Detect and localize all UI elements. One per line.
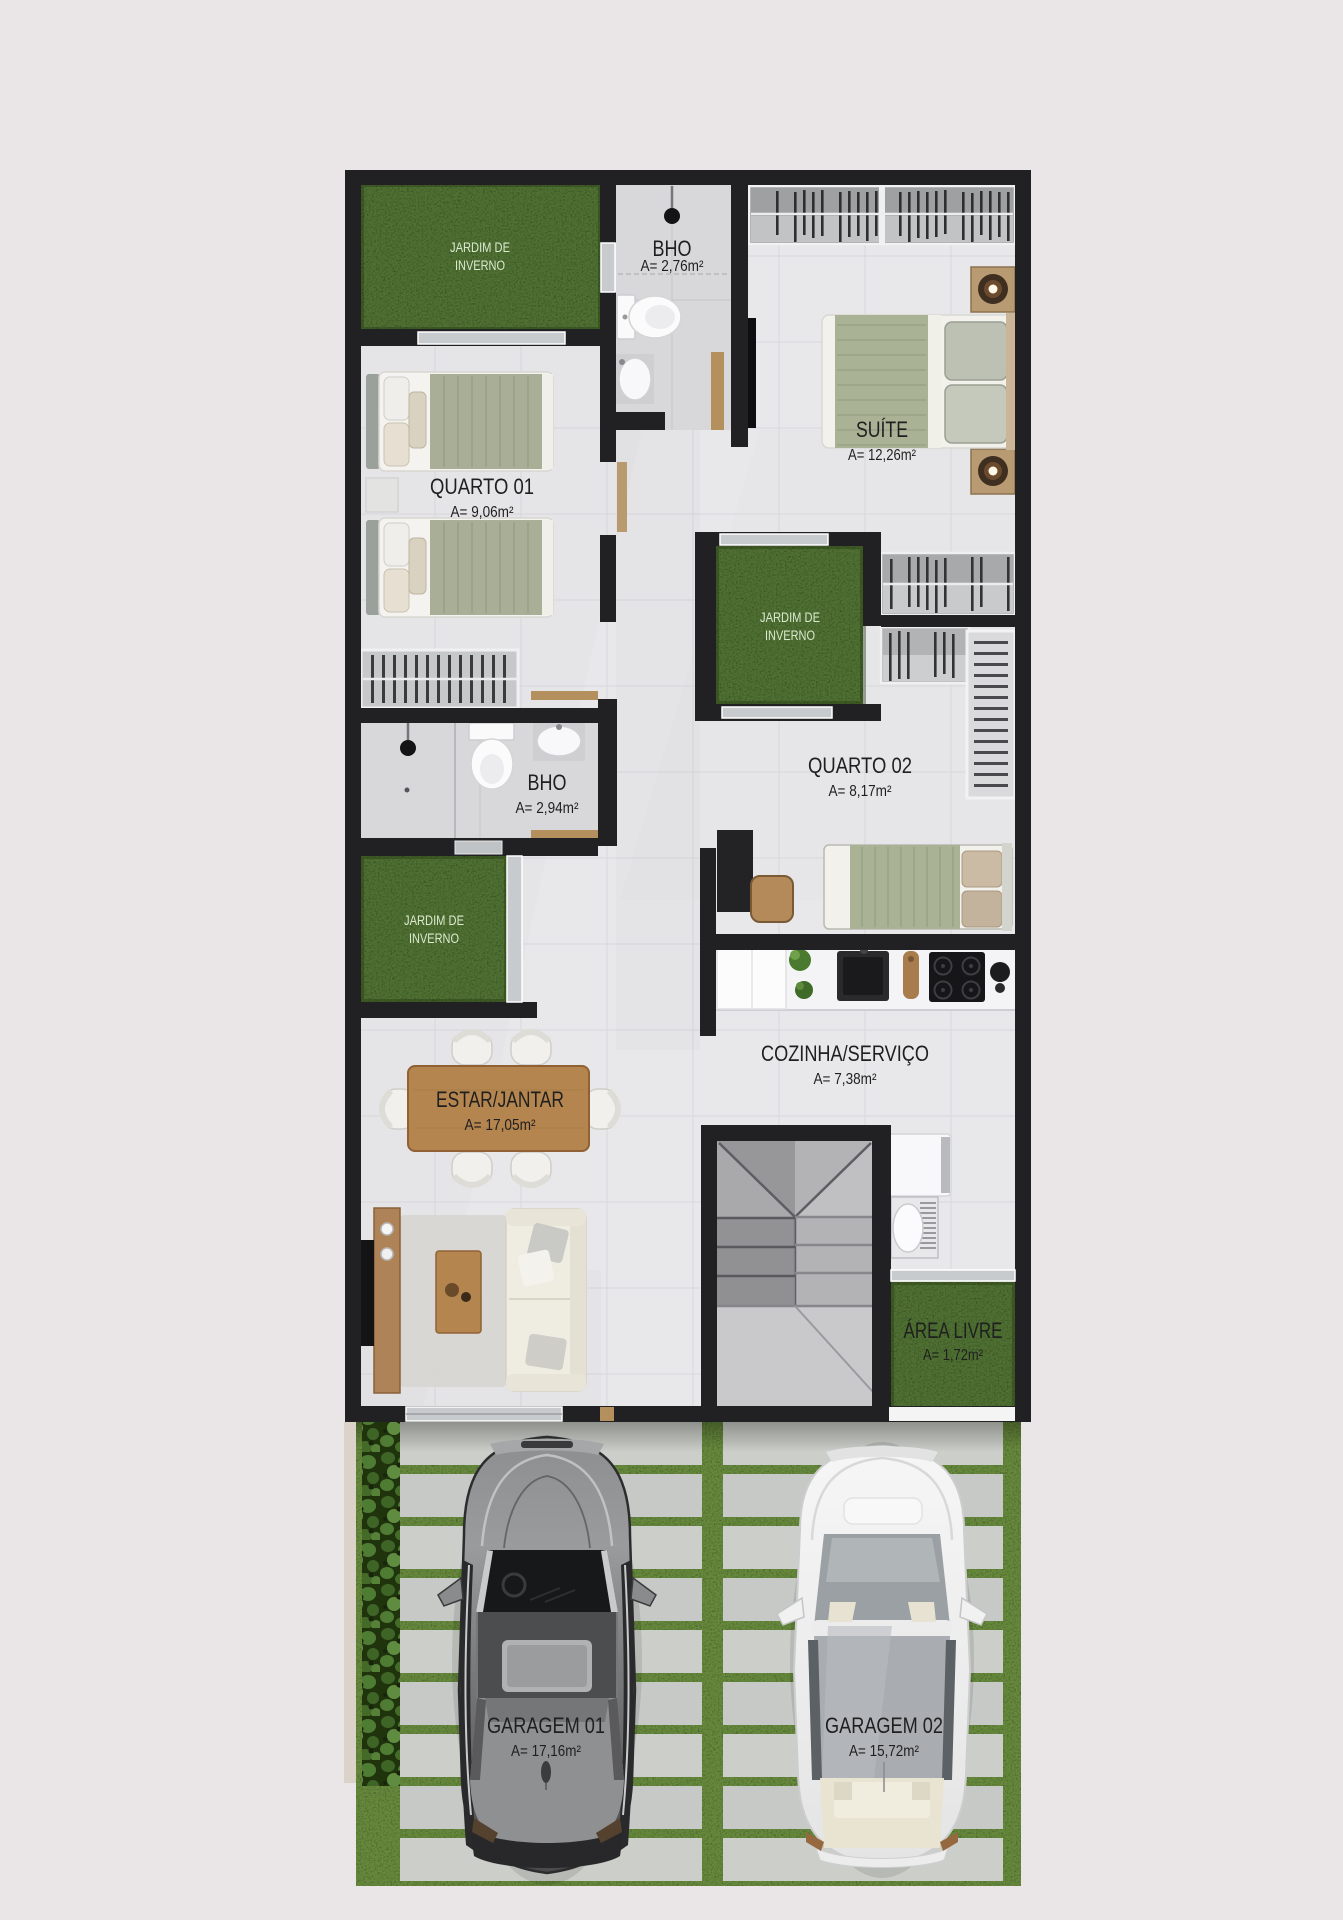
svg-text:A= 2,76m²: A= 2,76m² (641, 258, 704, 275)
svg-text:GARAGEM 01: GARAGEM 01 (487, 1713, 605, 1738)
svg-text:INVERNO: INVERNO (455, 258, 505, 273)
svg-text:QUARTO 01: QUARTO 01 (430, 474, 534, 499)
svg-text:ÁREA LIVRE: ÁREA LIVRE (904, 1318, 1003, 1343)
svg-text:A= 17,16m²: A= 17,16m² (511, 1743, 581, 1760)
svg-text:COZINHA/SERVIÇO: COZINHA/SERVIÇO (761, 1041, 929, 1066)
svg-text:A= 2,94m²: A= 2,94m² (516, 800, 579, 817)
svg-text:QUARTO 02: QUARTO 02 (808, 753, 912, 778)
svg-text:A= 17,05m²: A= 17,05m² (465, 1117, 536, 1134)
svg-text:JARDIM DE: JARDIM DE (450, 240, 510, 255)
svg-text:A= 12,26m²: A= 12,26m² (848, 447, 916, 464)
svg-text:JARDIM DE: JARDIM DE (404, 913, 464, 928)
svg-text:A= 9,06m²: A= 9,06m² (451, 504, 514, 521)
svg-text:A= 8,17m²: A= 8,17m² (829, 783, 892, 800)
svg-text:A= 15,72m²: A= 15,72m² (849, 1743, 919, 1760)
svg-text:A= 7,38m²: A= 7,38m² (814, 1071, 877, 1088)
svg-text:BHO: BHO (528, 770, 567, 795)
svg-text:INVERNO: INVERNO (409, 931, 459, 946)
svg-text:SUÍTE: SUÍTE (856, 417, 908, 442)
svg-text:JARDIM DE: JARDIM DE (760, 610, 820, 625)
svg-text:INVERNO: INVERNO (765, 628, 815, 643)
svg-text:ESTAR/JANTAR: ESTAR/JANTAR (436, 1087, 564, 1112)
svg-text:A= 1,72m²: A= 1,72m² (923, 1347, 983, 1364)
svg-text:GARAGEM 02: GARAGEM 02 (825, 1713, 943, 1738)
